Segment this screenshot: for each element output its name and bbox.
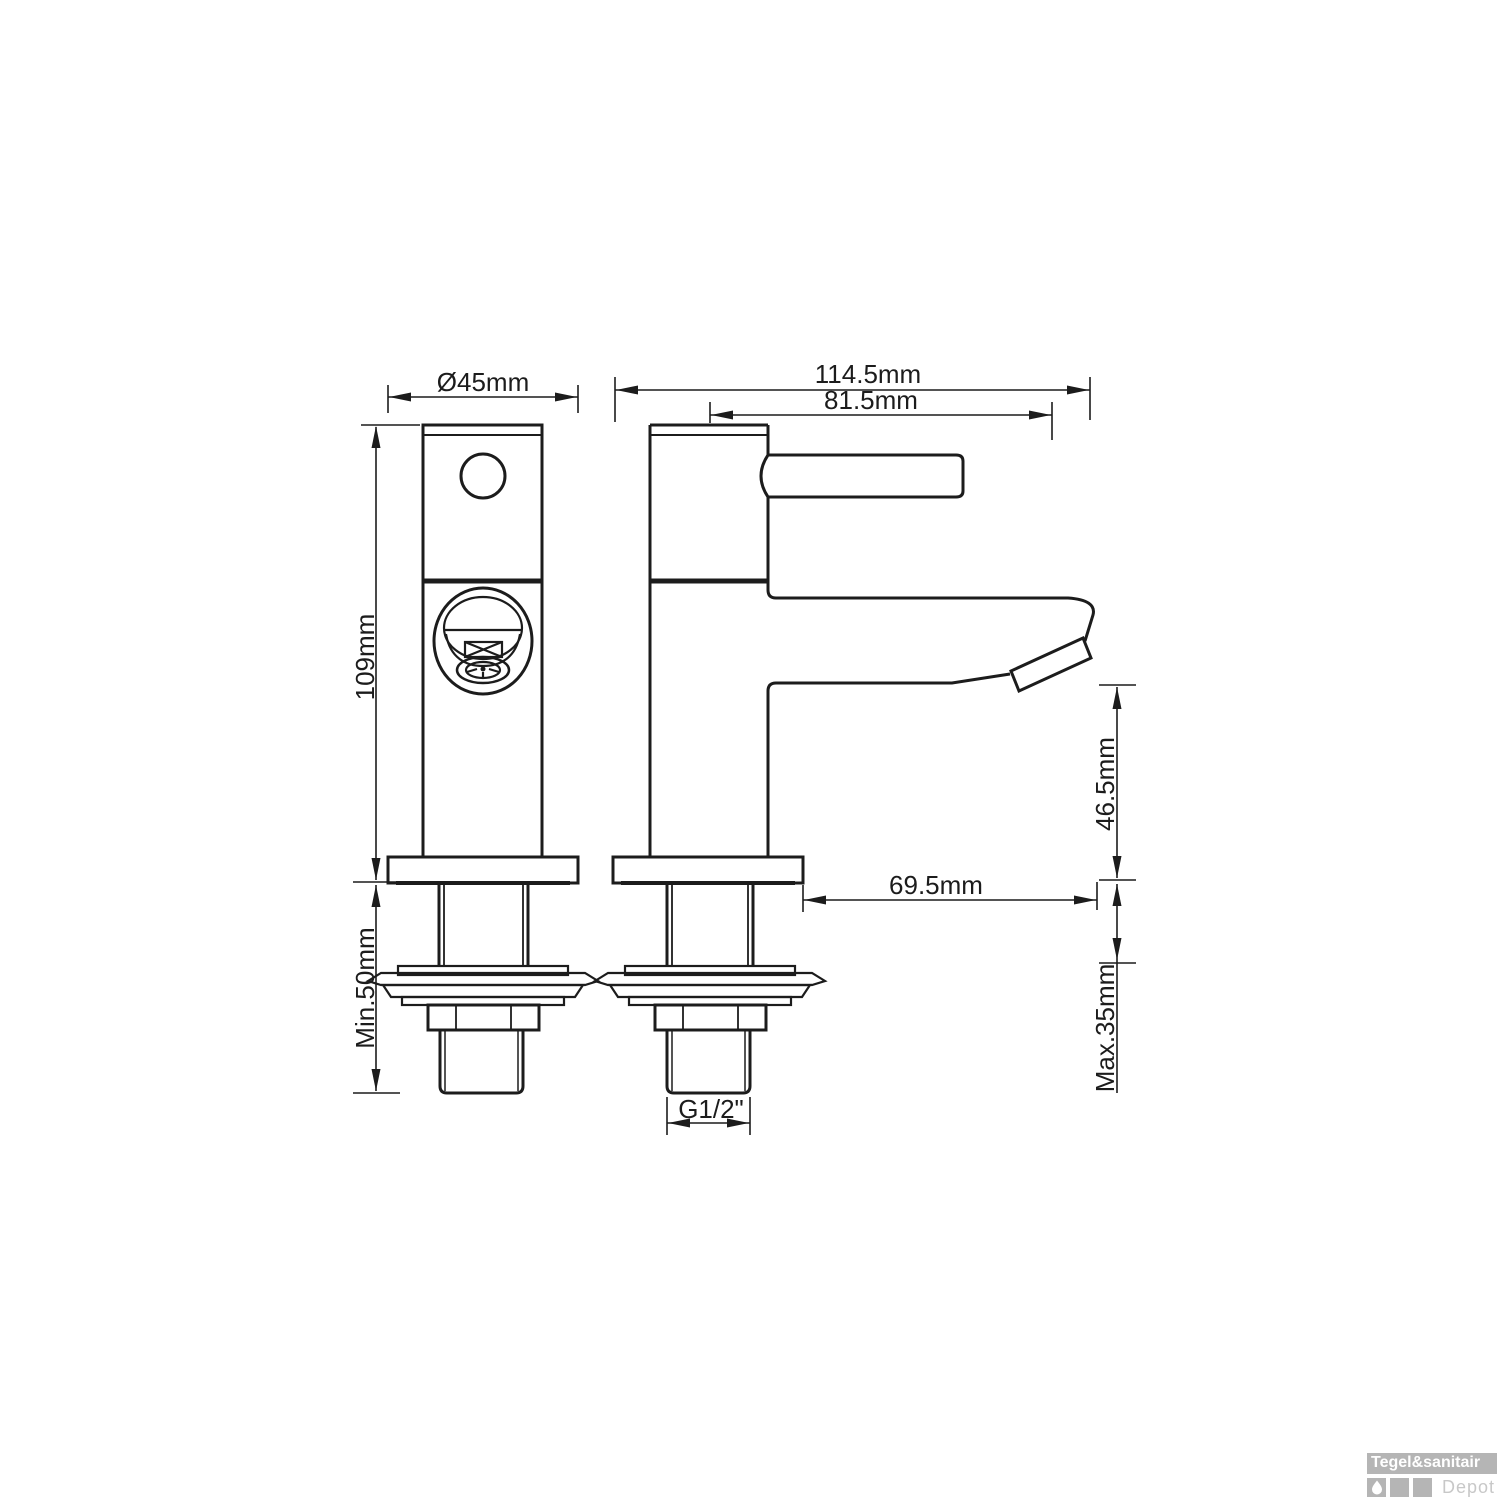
side-handle [761,455,963,497]
dim-label-max-thickness: Max.35mm [1090,964,1120,1093]
watermark-square [1390,1478,1409,1497]
water-drop-icon [1371,1480,1383,1495]
watermark-drop-square [1367,1478,1386,1497]
side-spout [768,590,1093,691]
dim-label-spout-height: 46.5mm [1090,737,1120,831]
front-underdeck [368,857,598,1093]
side-aerator-tip [1011,638,1091,691]
dim-label-thread-size: G1/2" [678,1094,744,1124]
front-view [368,425,598,1093]
front-hole [461,454,505,498]
front-aerator-detail [434,588,532,694]
side-view [595,425,1093,1093]
dimension-lines [353,377,1136,1135]
watermark-square [1413,1478,1432,1497]
watermark-brand-suffix: Depot [1442,1477,1495,1498]
dim-label-spout-reach: 69.5mm [889,870,983,900]
dim-label-handle-reach: 81.5mm [824,385,918,415]
watermark-brand: Tegel&sanitair [1367,1453,1497,1474]
dim-label-front-diameter: Ø45mm [437,367,529,397]
technical-drawing-page: Ø45mm 109mm Min.50mm 114.5mm 81.5mm 69.5… [0,0,1500,1500]
dim-label-front-height: 109mm [350,614,380,701]
watermark: Tegel&sanitair Depot [1367,1453,1497,1498]
dim-label-min-depth: Min.50mm [350,927,380,1048]
side-underdeck [595,857,825,1093]
faucet-dimension-drawing: Ø45mm 109mm Min.50mm 114.5mm 81.5mm 69.5… [0,0,1500,1500]
